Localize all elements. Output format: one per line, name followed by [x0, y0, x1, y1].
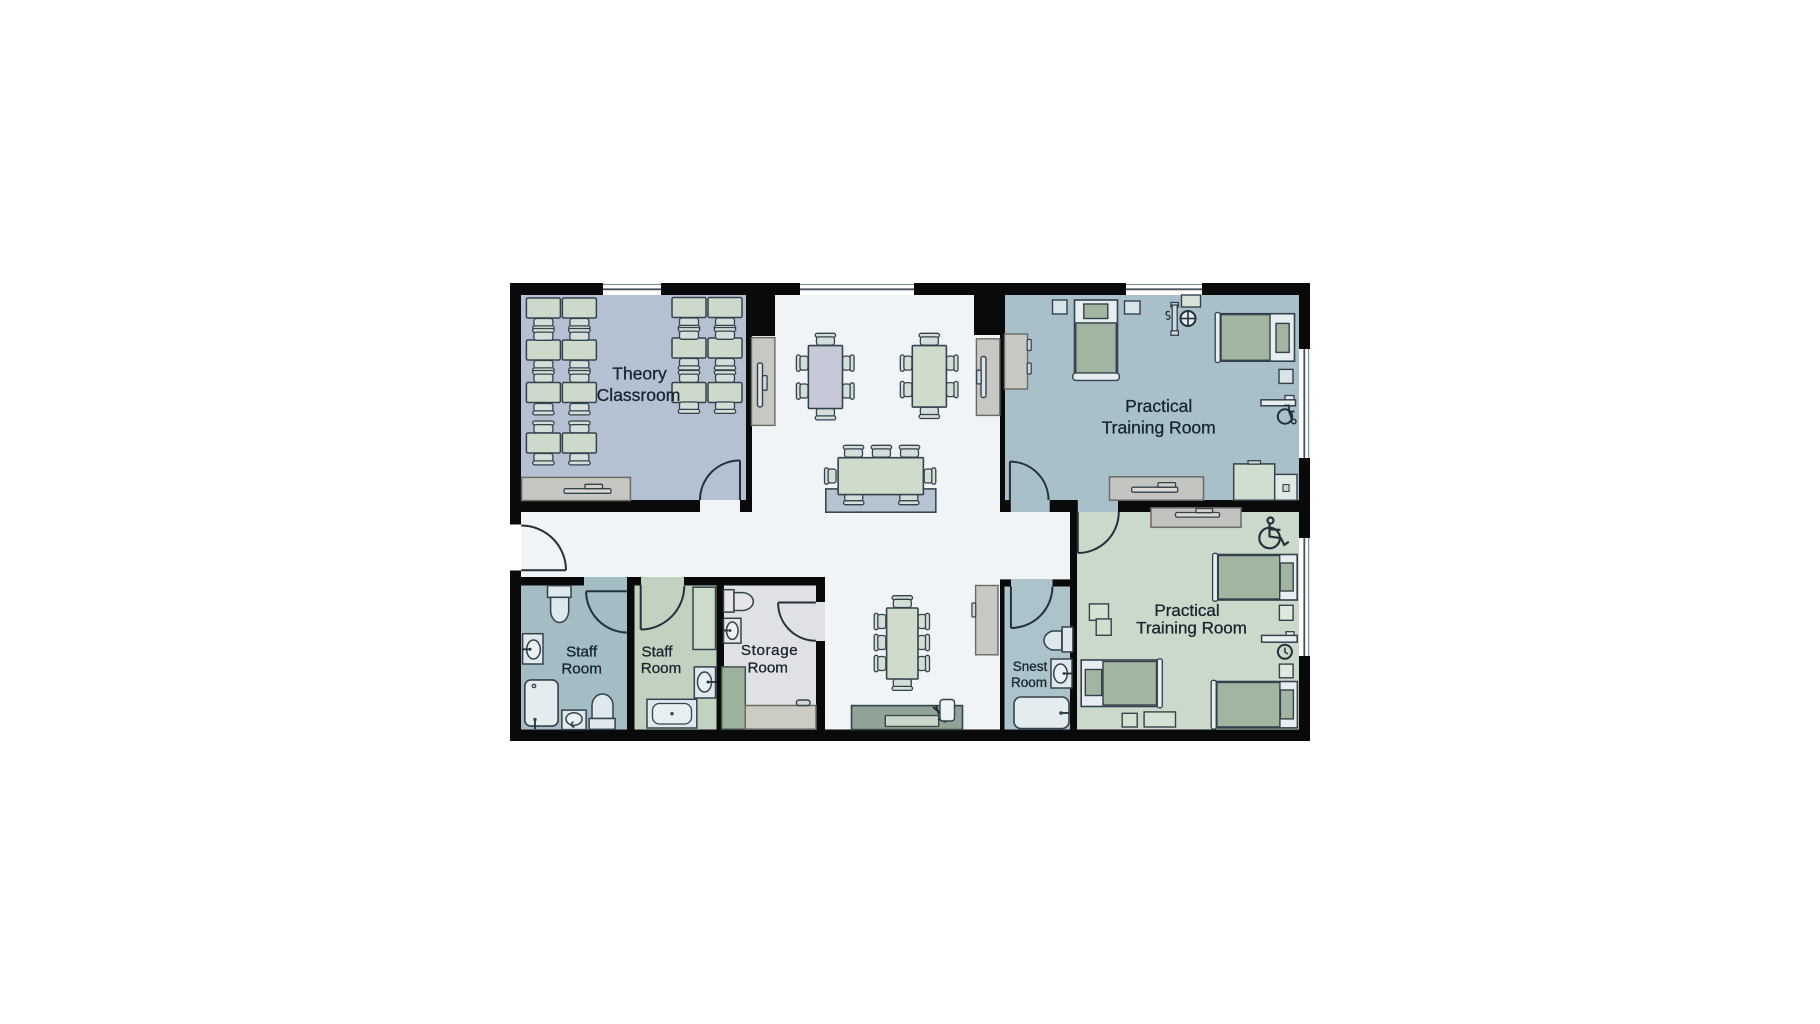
svg-text:Training Room: Training Room: [1102, 418, 1216, 438]
svg-text:Storage: Storage: [741, 642, 798, 659]
svg-text:Theory: Theory: [612, 364, 667, 384]
svg-text:Room: Room: [641, 660, 682, 677]
svg-text:Classroom: Classroom: [597, 385, 681, 405]
svg-text:Practical: Practical: [1125, 396, 1192, 416]
svg-text:Staff: Staff: [642, 644, 674, 661]
svg-text:Practical: Practical: [1154, 601, 1219, 620]
svg-text:Snest: Snest: [1013, 659, 1048, 674]
svg-text:Staff: Staff: [566, 644, 598, 661]
svg-text:Training Room: Training Room: [1136, 619, 1247, 638]
svg-text:Room: Room: [1011, 675, 1047, 690]
svg-text:Room: Room: [561, 661, 602, 678]
svg-text:Room: Room: [747, 660, 788, 677]
